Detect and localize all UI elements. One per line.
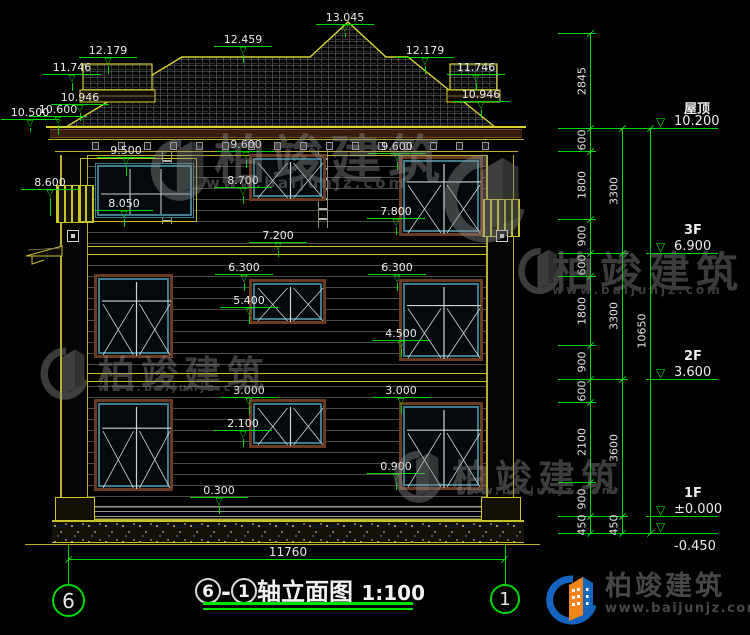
- dimension-leader: [126, 166, 127, 176]
- right-pilaster-ornament: [496, 230, 508, 242]
- right-pilaster-base: [481, 497, 521, 521]
- dimension-triangle: ▽: [208, 431, 278, 439]
- level-dimension: 3.000▽: [366, 385, 436, 414]
- dimension-leader: [243, 439, 244, 447]
- chain-dim-value: 900: [576, 489, 589, 510]
- level-dimension: 11.746▽: [441, 62, 511, 91]
- eave-line-top: [46, 126, 526, 128]
- dimension-leader: [397, 162, 398, 170]
- axis-bubble-1: 1: [490, 584, 520, 614]
- dimension-value: 7.200: [243, 230, 313, 241]
- dimension-value: 9.600: [211, 139, 281, 150]
- left-pilaster-ornament: [67, 230, 79, 242]
- dimension-value: 5.400: [214, 295, 284, 306]
- left-pilaster-base: [55, 497, 95, 521]
- dimension-triangle: ▽: [366, 341, 436, 349]
- dimension-triangle: ▽: [310, 25, 380, 33]
- level-dimension: 6.300▽: [209, 262, 279, 291]
- dimension-value: 12.179: [73, 45, 143, 56]
- dentil: [456, 142, 463, 150]
- dimension-leader: [401, 406, 402, 414]
- dimension-triangle: ▽: [214, 308, 284, 316]
- chain-dim-value: 600: [576, 254, 589, 275]
- dimension-triangle: ▽: [209, 275, 279, 283]
- axis-leader-right: [505, 559, 506, 585]
- dimension-leader: [72, 83, 73, 91]
- dimension-leader: [401, 349, 402, 357]
- dimension-value: 7.800: [361, 206, 431, 217]
- dimension-triangle: ▽: [361, 474, 431, 482]
- floor-elevation: 6.900: [674, 239, 711, 254]
- level-dimension: 12.459▽: [208, 34, 278, 63]
- level-dimension: 7.200▽: [243, 230, 313, 257]
- floor-elevation: 10.200: [674, 114, 720, 129]
- level-dimension: 13.045▽: [310, 12, 380, 37]
- dimension-value: 8.050: [89, 198, 159, 209]
- dimension-leader: [124, 219, 125, 227]
- wall-base-line: [62, 511, 512, 512]
- axis-number: 6: [62, 589, 75, 613]
- cornice-line: [48, 139, 524, 140]
- dimension-leader: [396, 227, 397, 235]
- dimension-value: 10.600: [23, 104, 93, 115]
- left-awning: [24, 240, 64, 272]
- dimension-value: 10.946: [446, 89, 516, 100]
- axis-number: 1: [499, 589, 510, 610]
- dimension-value: 8.600: [15, 177, 85, 188]
- dimension-value: 3.000: [214, 385, 284, 396]
- level-dimension: 9.600▽: [362, 141, 432, 170]
- axis-bubble-6: 6: [52, 584, 85, 617]
- brand-name: 柏竣建筑: [605, 573, 745, 601]
- chain-dim-value: 600: [576, 129, 589, 150]
- datum-triangle: ▽: [656, 242, 665, 253]
- overall-dim-text: 11760: [256, 545, 320, 559]
- floor-band-2f1f: [62, 373, 512, 382]
- level-dimension: 10.946▽: [446, 89, 516, 118]
- chain-dim-value: 3300: [608, 302, 621, 330]
- dimension-triangle: ▽: [15, 190, 85, 198]
- dimension-triangle: ▽: [211, 152, 281, 160]
- chain-dim-value: 450: [576, 514, 589, 535]
- floor-elevation: ±0.000: [674, 502, 722, 517]
- dimension-leader: [249, 406, 250, 414]
- dimension-leader: [425, 66, 426, 74]
- dimension-triangle: ▽: [184, 498, 254, 506]
- dimension-value: 9.600: [362, 141, 432, 152]
- dimension-triangle: ▽: [214, 398, 284, 406]
- level-dimension: 8.050▽: [89, 198, 159, 227]
- dimension-value: 0.900: [361, 461, 431, 472]
- level-dimension: 9.600▽: [211, 139, 281, 168]
- dimension-value: 8.700: [208, 175, 278, 186]
- dimension-leader: [50, 198, 51, 216]
- dimension-triangle: ▽: [361, 219, 431, 227]
- datum-triangle: ▽: [656, 117, 665, 128]
- dimension-triangle: ▽: [208, 47, 278, 55]
- chain-dim-value: 450: [608, 514, 621, 535]
- floor-elevation: 3.600: [674, 365, 711, 380]
- dentil: [326, 142, 333, 150]
- brand-logo: 柏竣建筑 www.baijunjz.com: [543, 571, 599, 625]
- floor-label: 1F: [684, 486, 702, 501]
- title-underline: [203, 602, 413, 605]
- floor-label: 3F: [684, 223, 702, 238]
- dimension-leader: [244, 283, 245, 291]
- chain-line: [590, 33, 591, 533]
- level-dimension: 4.500▽: [366, 328, 436, 357]
- overall-dim-line: [68, 559, 506, 560]
- watermark-logo-icon: [516, 243, 562, 296]
- dimension-leader: [246, 160, 247, 168]
- dentil: [196, 142, 203, 150]
- dimension-leader: [396, 482, 397, 490]
- dimension-value: 6.300: [362, 262, 432, 273]
- dimension-triangle: ▽: [441, 75, 511, 83]
- dimension-value: 12.459: [208, 34, 278, 45]
- dimension-triangle: ▽: [243, 243, 313, 251]
- window: [94, 399, 173, 491]
- chain-dim-value: 600: [576, 380, 589, 401]
- title-axis-start-circle: 6: [195, 578, 221, 604]
- level-dimension: 6.300▽: [362, 262, 432, 291]
- dentil: [352, 142, 359, 150]
- dimension-value: 13.045: [310, 12, 380, 23]
- dimension-value: 12.179: [390, 45, 460, 56]
- axis-leader-left: [68, 560, 69, 585]
- dimension-triangle: ▽: [23, 117, 93, 125]
- datum-triangle: ▽: [656, 522, 665, 533]
- dimension-triangle: ▽: [208, 188, 278, 196]
- window: [94, 274, 173, 358]
- chain-line: [622, 128, 623, 533]
- chain-cross-line: [558, 379, 628, 380]
- dimension-value: 0.300: [184, 485, 254, 496]
- chain-dim-value: 900: [576, 226, 589, 247]
- dimension-leader: [397, 283, 398, 291]
- chain-dim-value: 10650: [636, 313, 649, 348]
- datum-triangle: ▽: [656, 505, 665, 516]
- dimension-triangle: ▽: [91, 158, 161, 166]
- level-dimension: 10.600▽: [23, 104, 93, 135]
- level-dimension: 0.900▽: [361, 461, 431, 490]
- level-dimension: 3.000▽: [214, 385, 284, 414]
- chain-dim-value: 1800: [576, 171, 589, 199]
- title-axis-end-circle: 1: [231, 578, 257, 604]
- dimension-value: 3.000: [366, 385, 436, 396]
- dimension-leader: [243, 196, 244, 204]
- dimension-triangle: ▽: [366, 398, 436, 406]
- chain-line: [650, 128, 651, 533]
- wall-base-line: [62, 516, 512, 517]
- level-dimension: 0.300▽: [184, 485, 254, 514]
- level-dimension: 5.400▽: [214, 295, 284, 324]
- level-dimension: 2.100▽: [208, 418, 278, 447]
- dimension-leader: [58, 125, 59, 135]
- cad-elevation-drawing: 13.045▽12.459▽12.179▽11.746▽10.946▽10.50…: [0, 0, 750, 635]
- chain-dim-value: 900: [576, 352, 589, 373]
- dimension-triangle: ▽: [362, 275, 432, 283]
- datum-triangle: ▽: [656, 368, 665, 379]
- chain-cross-line: [558, 253, 628, 254]
- dimension-triangle: ▽: [446, 102, 516, 110]
- chain-dim-value: 2100: [576, 428, 589, 456]
- chain-cross-line: [558, 128, 656, 129]
- dimension-value: 9.500: [91, 145, 161, 156]
- dimension-value: 4.500: [366, 328, 436, 339]
- dimension-triangle: ▽: [37, 75, 107, 83]
- dimension-triangle: ▽: [362, 154, 432, 162]
- chain-dim-value: 1800: [576, 297, 589, 325]
- dimension-leader: [108, 66, 109, 74]
- floor-label: 2F: [684, 349, 702, 364]
- dimension-leader: [249, 316, 250, 324]
- level-dimension: 8.700▽: [208, 175, 278, 204]
- dimension-leader: [219, 506, 220, 514]
- chain-dim-value: 3300: [608, 177, 621, 205]
- chain-dim-value: 3600: [608, 434, 621, 462]
- dimension-leader: [481, 110, 482, 118]
- dimension-value: 11.746: [441, 62, 511, 73]
- dimension-triangle: ▽: [89, 211, 159, 219]
- level-dimension: 9.500▽: [91, 145, 161, 176]
- dimension-leader: [243, 55, 244, 63]
- floor-elevation: -0.450: [674, 539, 716, 554]
- chain-dim-value: 2845: [576, 67, 589, 95]
- plinth: [52, 520, 524, 543]
- brand-icon: [543, 571, 599, 625]
- dimension-value: 10.946: [45, 92, 115, 103]
- brand-url: www.baijunjz.com: [605, 601, 745, 616]
- dentil: [482, 142, 489, 150]
- dentil: [170, 142, 177, 150]
- dimension-value: 11.746: [37, 62, 107, 73]
- level-dimension: 8.600▽: [15, 177, 85, 216]
- dentil: [300, 142, 307, 150]
- watermark-url: www.baijunjz.com: [552, 283, 723, 297]
- dimension-value: 6.300: [209, 262, 279, 273]
- level-dimension: 11.746▽: [37, 62, 107, 91]
- cornice-band: [50, 129, 522, 138]
- title-underline: [203, 608, 413, 610]
- dimension-value: 2.100: [208, 418, 278, 429]
- wall-base-line: [62, 506, 512, 507]
- level-dimension: 7.800▽: [361, 206, 431, 235]
